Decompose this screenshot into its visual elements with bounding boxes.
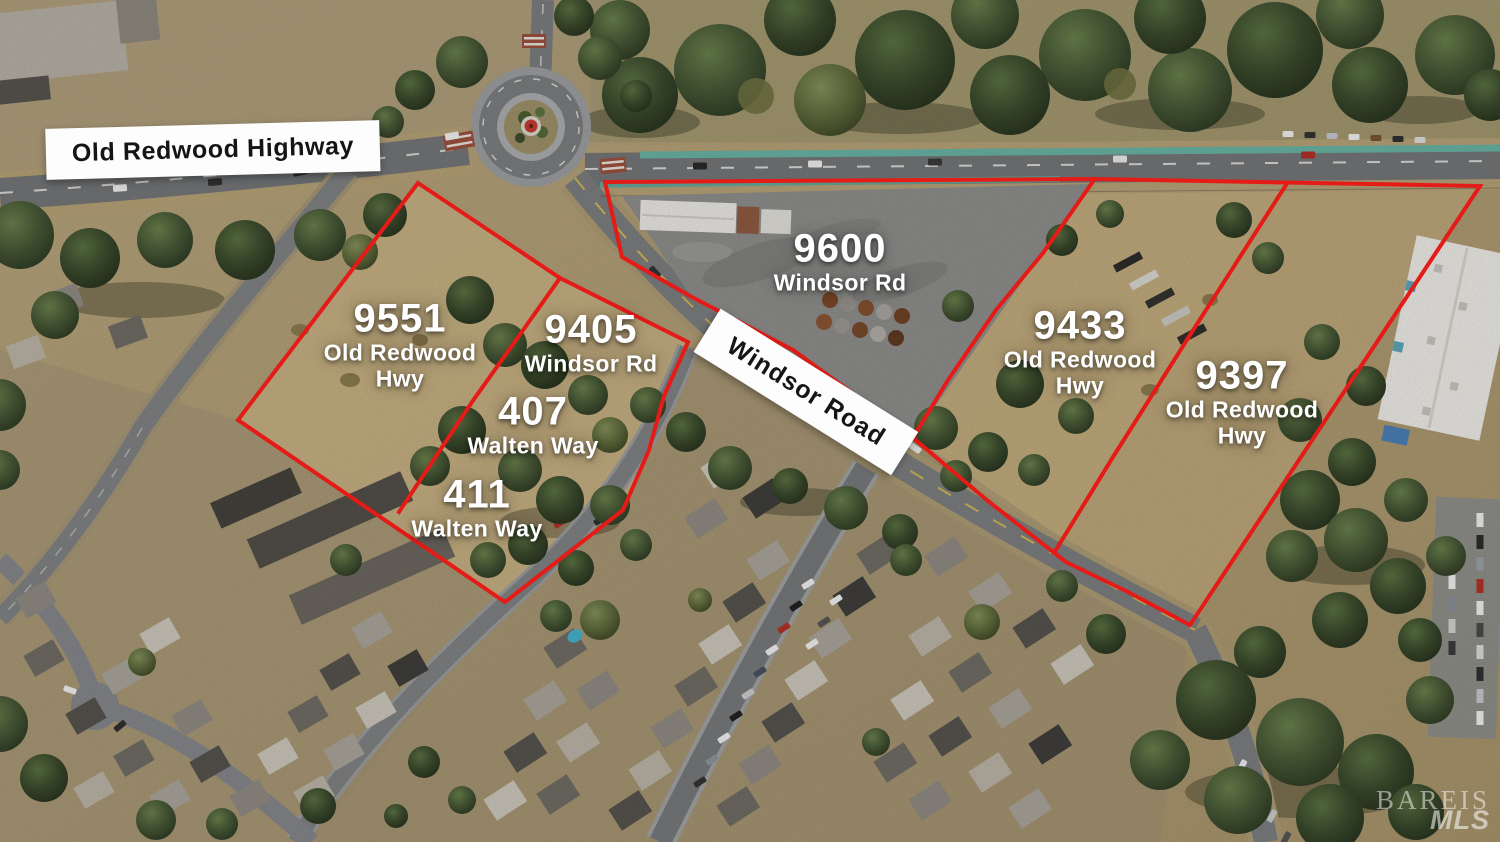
road-label-old-redwood-highway: Old Redwood Highway — [45, 120, 380, 180]
watermark: BAREIS MLS — [1376, 787, 1490, 834]
aerial-property-map: Old Redwood Highway Windsor Road 9551 Ol… — [0, 0, 1500, 842]
